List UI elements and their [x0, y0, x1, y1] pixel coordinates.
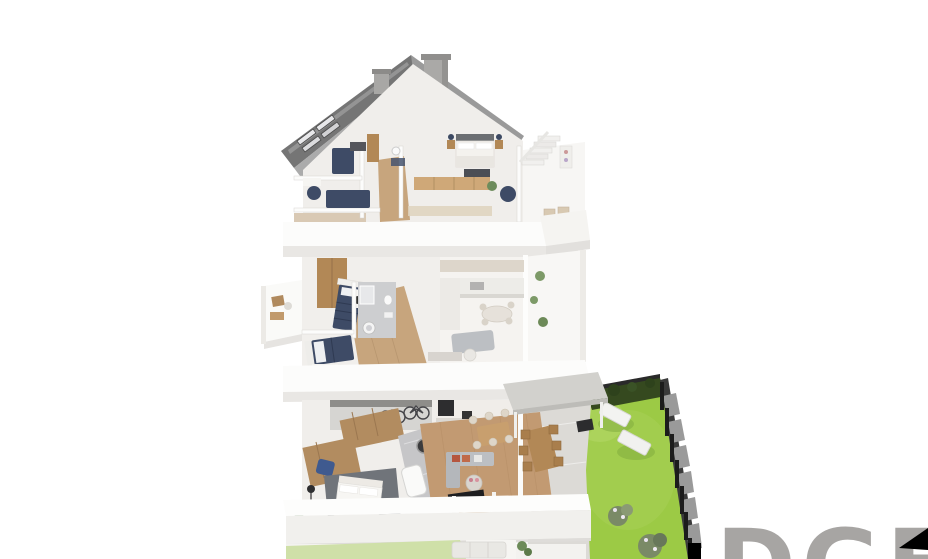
wall-cap	[352, 282, 356, 338]
shelf-decor	[564, 150, 568, 154]
dining-chair	[501, 409, 509, 417]
render-canvas: DGE	[0, 0, 928, 559]
attic-bath-mat	[391, 158, 405, 166]
dining-chair	[506, 318, 513, 325]
fence-post	[665, 408, 669, 436]
fence-post	[680, 486, 684, 514]
pergola-post	[514, 412, 517, 438]
upper-cabinets	[440, 260, 524, 272]
mf-balcony-floor	[264, 280, 302, 342]
attic-wood-dresser	[367, 134, 379, 162]
fence-post	[684, 512, 688, 540]
dining-chair	[505, 435, 513, 443]
master-blanket	[456, 156, 494, 167]
red-cushion	[462, 455, 470, 462]
chimney-cap	[372, 69, 391, 74]
shrub-blossom	[653, 547, 657, 551]
white-cushion	[474, 455, 482, 462]
attic-office-chair	[307, 186, 321, 200]
bed-bench	[464, 169, 490, 177]
loggia-plant	[530, 296, 538, 304]
mf-coffee-table	[464, 349, 476, 361]
gf-coffee-table	[466, 475, 482, 491]
wall-cap	[517, 146, 521, 222]
master-bed-headboard	[456, 134, 494, 141]
sink	[384, 312, 393, 318]
outdoor-chair	[552, 441, 561, 450]
master-pillow	[458, 143, 474, 149]
nightstand	[447, 140, 455, 149]
dining-chair	[485, 412, 493, 420]
shelf-decor	[564, 158, 568, 162]
loggia-plant	[538, 317, 548, 327]
hedge-texture	[645, 378, 655, 388]
mf-tv-sideboard	[428, 352, 462, 361]
hedge-texture	[627, 382, 637, 392]
fence-post	[670, 434, 674, 462]
attic-slab-face	[283, 246, 578, 257]
shrub-foliage	[653, 533, 667, 547]
shower	[360, 286, 374, 304]
balcony-wood-chair	[271, 295, 285, 307]
shrub-blossom	[613, 508, 617, 512]
mf-balcony-railing	[261, 286, 266, 344]
attic-kids-desk	[350, 142, 366, 151]
dining-chair	[480, 304, 487, 311]
bedside-lamp	[496, 134, 502, 140]
attic-balcony-slab	[540, 210, 590, 246]
balcony-table	[284, 302, 292, 310]
dining-chair	[482, 319, 489, 326]
fence-post	[660, 382, 664, 410]
stair-step	[522, 160, 544, 165]
mf-bathroom	[358, 282, 396, 338]
cooktop	[470, 282, 484, 290]
flower	[469, 478, 473, 482]
outdoor-chair	[554, 457, 563, 466]
terrace-shelf	[560, 146, 572, 168]
hedge-texture	[608, 384, 620, 396]
dining-chair	[473, 441, 481, 449]
fence-post	[675, 460, 679, 488]
wall-cap	[294, 208, 380, 212]
stair-step	[526, 154, 548, 159]
ll-sofa	[452, 542, 506, 558]
watermark-letter-fragment	[688, 543, 701, 559]
pergola-post	[600, 402, 603, 428]
attic-bedroom-rug	[408, 206, 492, 216]
toilet	[384, 295, 392, 305]
ll-plant	[524, 548, 532, 556]
outdoor-chair	[521, 430, 530, 439]
red-cushion	[452, 455, 460, 462]
nightstand	[495, 140, 503, 149]
flower	[475, 478, 479, 482]
attic-kids-bed	[332, 148, 354, 174]
master-pillow	[476, 143, 492, 149]
shrub-foliage	[621, 504, 633, 516]
shrub-blossom	[644, 538, 648, 542]
outdoor-chair	[549, 425, 558, 434]
dining-chair	[508, 302, 515, 309]
loggia-railing	[580, 250, 586, 362]
washing-machine-door	[366, 325, 372, 331]
attic-toilet	[392, 147, 400, 155]
cooker-hood	[438, 400, 454, 416]
attic-slab-top	[283, 222, 578, 246]
attic-level	[283, 64, 590, 257]
dining-chair	[489, 438, 497, 446]
balcony-bench	[270, 312, 284, 320]
house-render: DGE	[0, 0, 928, 559]
mf-loggia	[523, 250, 585, 366]
attic-office-desk	[303, 178, 321, 186]
kitchen-column	[440, 278, 460, 330]
attic-sideboard	[414, 177, 490, 190]
wall-cap	[302, 330, 354, 334]
chimney-cap	[421, 54, 451, 60]
bedside-lamp	[448, 134, 454, 140]
loggia-plant	[535, 271, 545, 281]
wall-cap	[399, 146, 403, 218]
outdoor-chair	[523, 462, 532, 471]
watermark-text: DGE	[716, 509, 928, 559]
attic-daybed	[326, 190, 370, 208]
attic-navy-armchair	[500, 186, 516, 202]
outdoor-chair	[519, 446, 528, 455]
shrub-blossom	[621, 515, 625, 519]
watermark: DGE	[688, 509, 928, 559]
attic-plant	[487, 181, 497, 191]
dining-chair	[469, 416, 477, 424]
